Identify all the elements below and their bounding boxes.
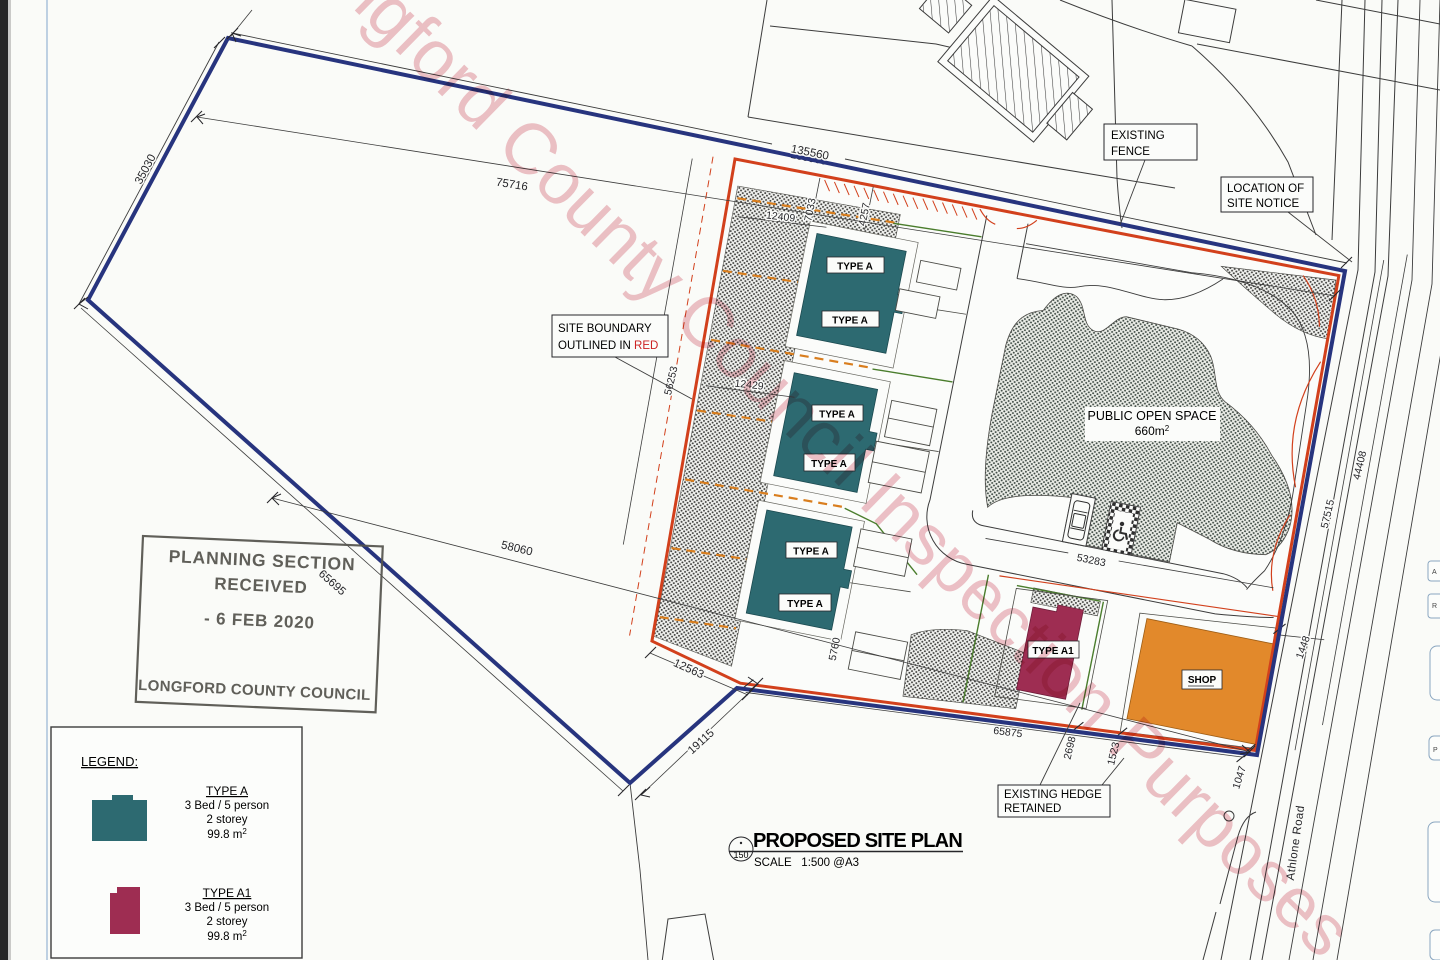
svg-text:TYPE A: TYPE A [832, 316, 868, 327]
svg-text:LOCATION OF: LOCATION OF [1227, 183, 1304, 195]
svg-text:660m2: 660m2 [1135, 424, 1170, 439]
svg-text:SITE NOTICE: SITE NOTICE [1227, 198, 1300, 210]
svg-text:TYPE A: TYPE A [206, 784, 248, 798]
svg-text:99.8 m2: 99.8 m2 [207, 929, 247, 944]
svg-text:PROPOSED SITE PLAN: PROPOSED SITE PLAN [753, 830, 962, 852]
svg-text:SITE BOUNDARY: SITE BOUNDARY [558, 323, 652, 335]
svg-text:RECEIVED: RECEIVED [214, 574, 308, 597]
svg-text:FENCE: FENCE [1111, 146, 1150, 158]
svg-text:TYPE A: TYPE A [837, 262, 873, 273]
svg-text:3 Bed / 5 person: 3 Bed / 5 person [185, 902, 269, 914]
svg-text:TYPE A: TYPE A [793, 547, 829, 558]
svg-text:OUTLINED IN RED: OUTLINED IN RED [558, 340, 658, 352]
svg-text:RETAINED: RETAINED [1004, 803, 1061, 815]
svg-text:3 Bed / 5 person: 3 Bed / 5 person [185, 800, 269, 812]
svg-text:99.8 m2: 99.8 m2 [207, 827, 247, 842]
svg-text:SHOP: SHOP [1188, 675, 1217, 686]
svg-text:PUBLIC OPEN SPACE: PUBLIC OPEN SPACE [1088, 409, 1217, 423]
svg-text:TYPE A: TYPE A [787, 599, 823, 610]
svg-text:P: P [1433, 747, 1438, 754]
svg-text:SCALE 1:500 @A3: SCALE 1:500 @A3 [754, 857, 859, 869]
svg-text:R: R [1432, 603, 1437, 610]
svg-text:EXISTING HEDGE: EXISTING HEDGE [1004, 789, 1102, 801]
svg-text:A: A [1432, 569, 1437, 576]
svg-text:EXISTING: EXISTING [1111, 130, 1165, 142]
svg-text:LEGEND:: LEGEND: [81, 754, 138, 769]
svg-text:2 storey: 2 storey [207, 814, 248, 826]
svg-text:2 storey: 2 storey [207, 916, 248, 928]
svg-text:TYPE A1: TYPE A1 [203, 886, 252, 900]
